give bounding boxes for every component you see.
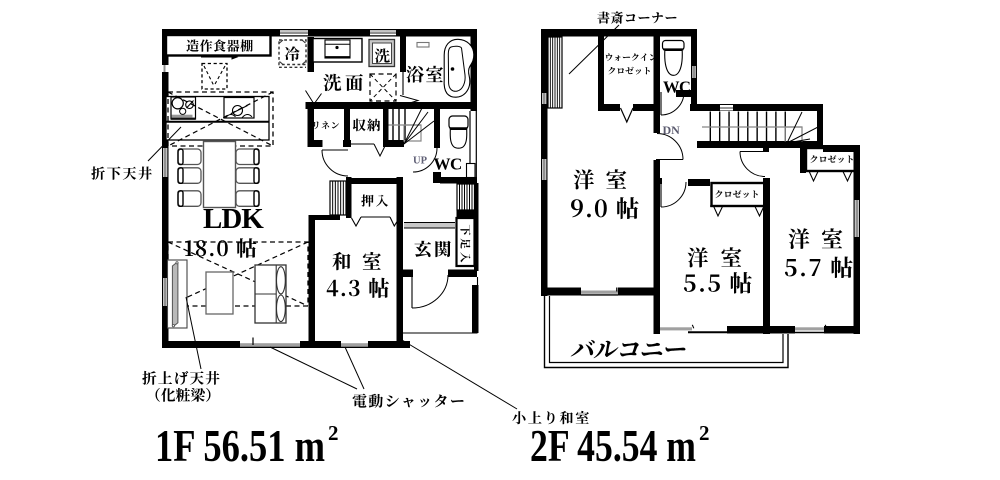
svg-text:WC: WC bbox=[434, 155, 462, 174]
svg-text:WC: WC bbox=[663, 78, 690, 97]
svg-text:2: 2 bbox=[328, 421, 339, 445]
svg-text:LDK: LDK bbox=[203, 203, 264, 235]
svg-text:1F 56.51 m: 1F 56.51 m bbox=[155, 420, 325, 471]
svg-text:2: 2 bbox=[699, 421, 710, 445]
svg-text:UP: UP bbox=[413, 156, 428, 167]
svg-text:2F 45.54 m: 2F 45.54 m bbox=[530, 420, 696, 471]
